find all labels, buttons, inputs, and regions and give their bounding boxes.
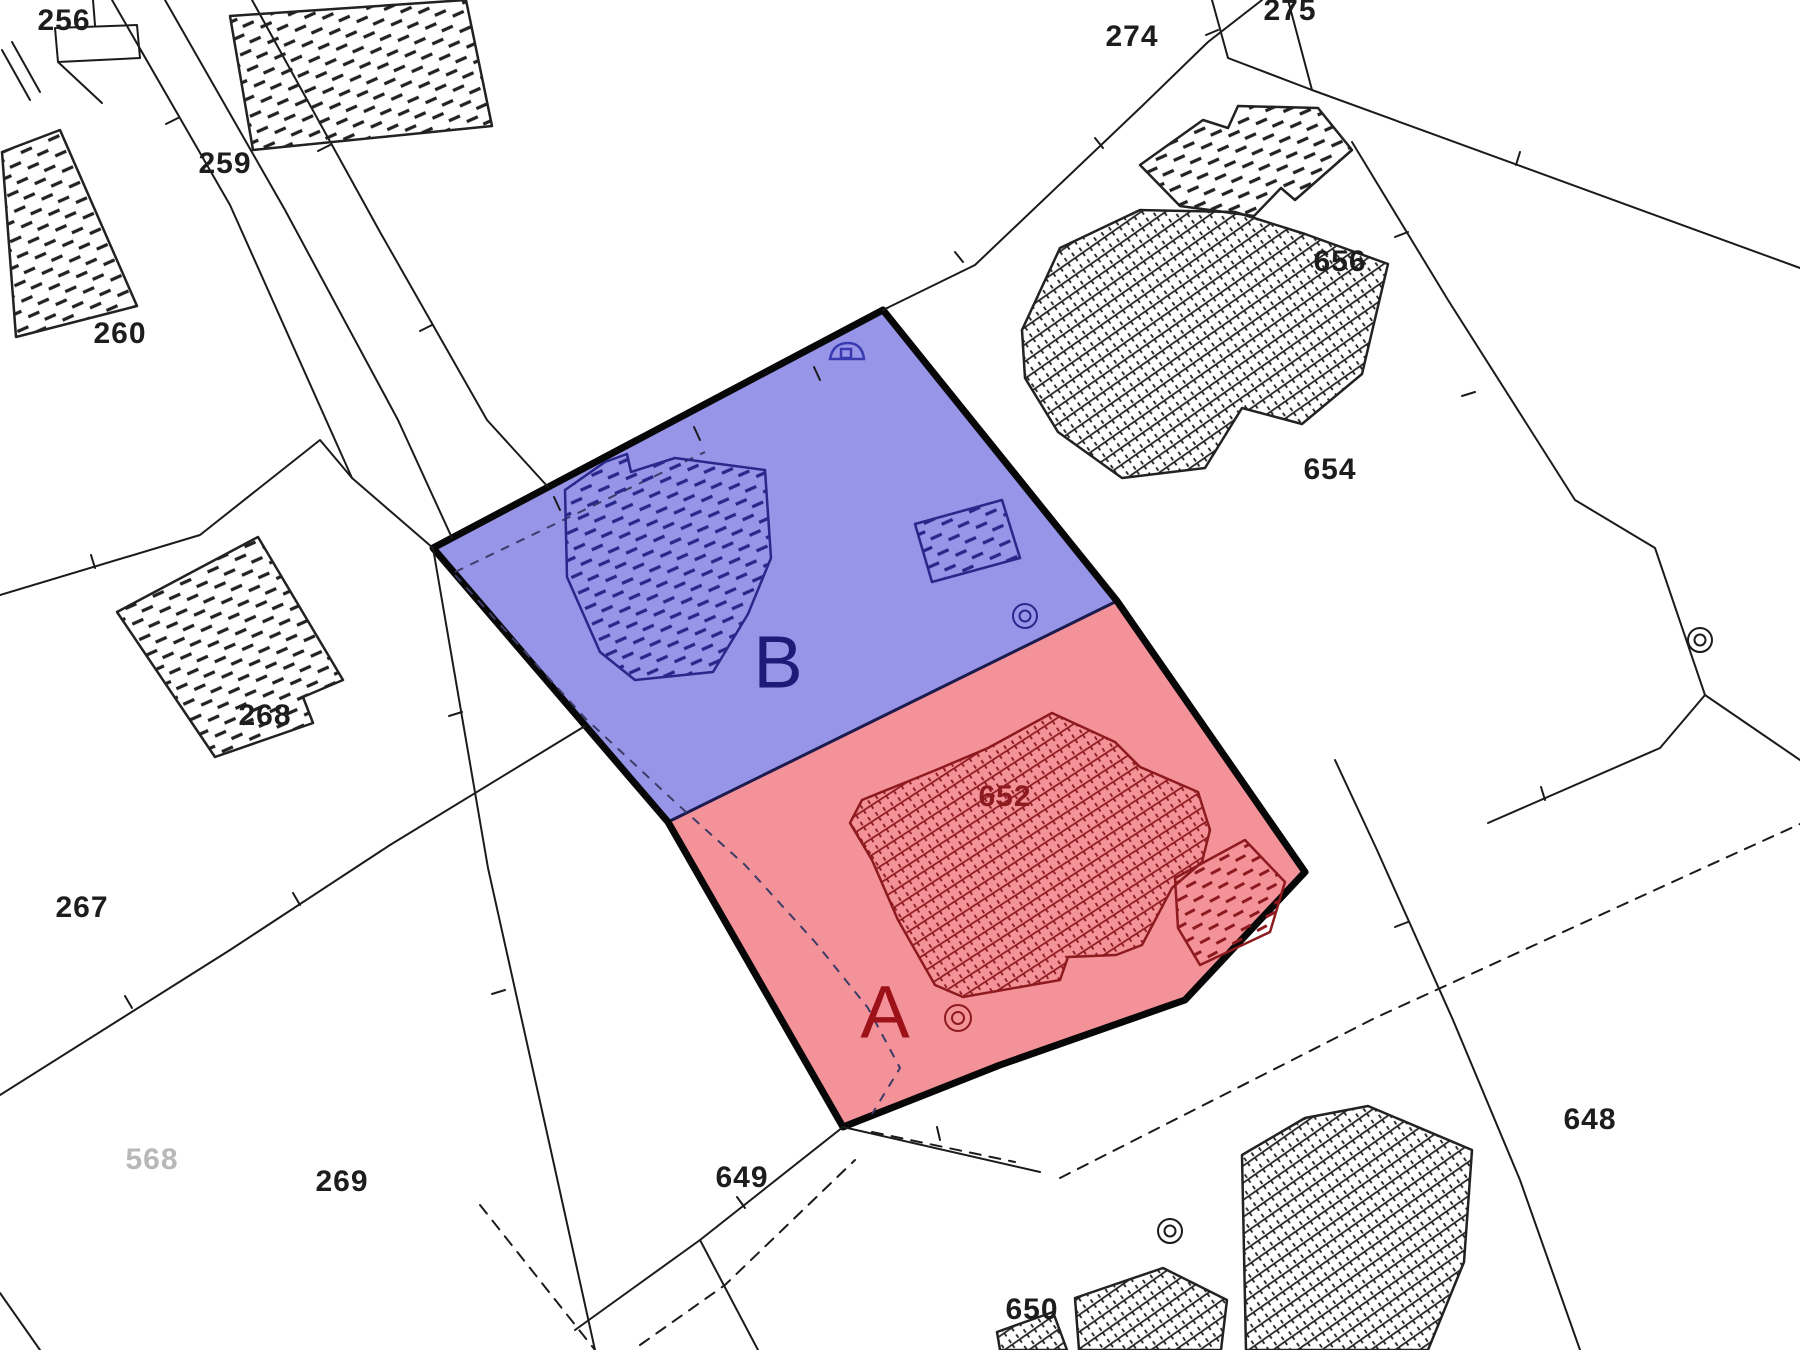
road-649-north-edge [575,1127,843,1330]
survey-marker-south-icon [1158,1219,1182,1243]
building-268 [117,537,343,757]
building-260 [2,130,137,337]
survey-marker-east-icon [1688,628,1712,652]
label-parcel-649: 649 [715,1161,768,1194]
label-parcel-256: 256 [37,4,90,37]
bottom-left-boundary [0,1293,40,1350]
label-parcel-648: 648 [1563,1103,1616,1136]
parcel-269-649-corner [700,1240,758,1350]
parcel-656-north-boundary [1312,90,1800,268]
label-parcel-652: 652 [978,780,1031,813]
label-plot-a[interactable]: A [860,971,910,1054]
building-top-left [230,0,492,150]
road-southeast-edge [843,1127,1040,1172]
map-canvas: 256 259 260 274 275 656 654 268 267 269 … [0,0,1800,1350]
label-parcel-260: 260 [93,317,146,350]
road-corner-segment [352,478,433,548]
building-274 [1140,106,1352,216]
label-parcel-268: 268 [238,699,291,732]
label-parcel-650: 650 [1005,1293,1058,1326]
building-650-main [1075,1268,1227,1350]
parcel-654-east-boundary [1352,142,1800,760]
label-parcel-275: 275 [1263,0,1316,27]
cadastral-map: 256 259 260 274 275 656 654 268 267 269 … [0,0,1800,1350]
label-parcel-269: 269 [315,1165,368,1198]
label-parcel-274: 274 [1105,20,1158,53]
parcel-268-north-boundary [0,440,352,595]
label-plot-b[interactable]: B [753,621,802,704]
label-parcel-259: 259 [198,147,251,180]
label-parcel-568: 568 [125,1143,178,1176]
label-parcel-267: 267 [55,891,108,924]
parcel-656-south-boundary [1488,695,1705,823]
building-648 [1242,1106,1472,1350]
label-parcel-654: 654 [1303,453,1356,486]
label-parcel-656: 656 [1313,245,1366,278]
